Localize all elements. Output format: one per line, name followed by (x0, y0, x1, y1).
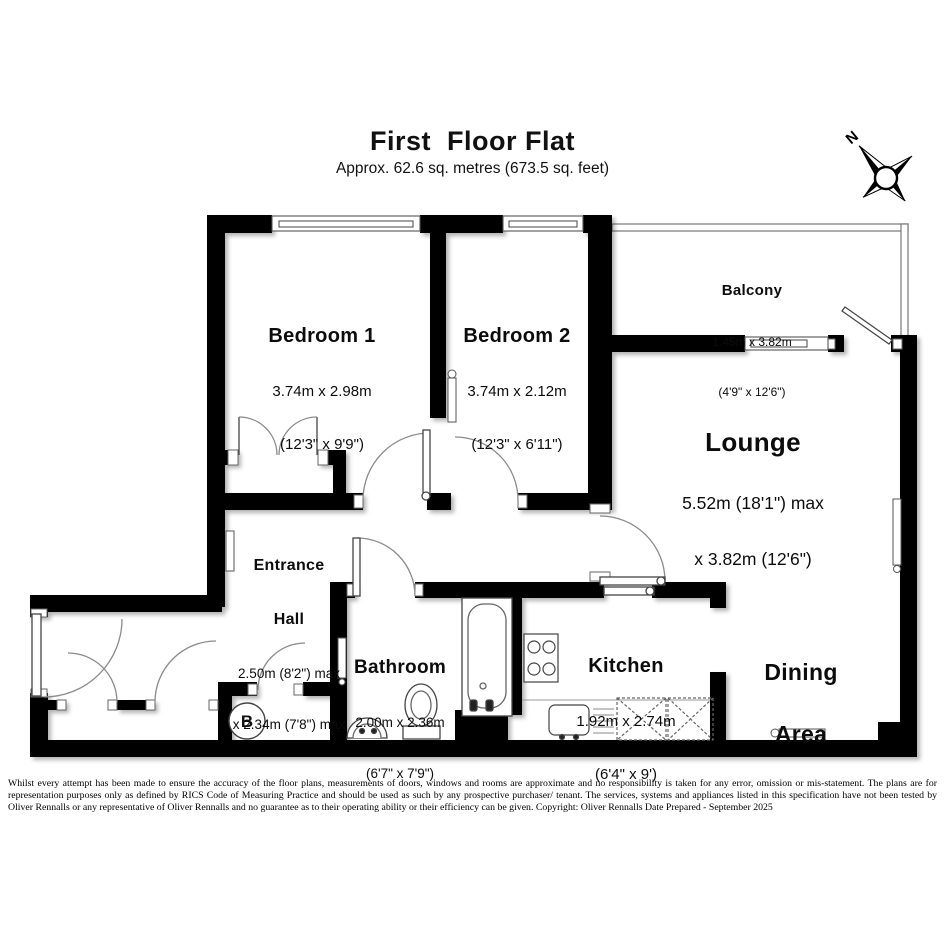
hob (524, 634, 558, 682)
page-title: First Floor Flat (0, 126, 945, 157)
kitchen-sliding-door (604, 587, 654, 595)
disclaimer-text: Whilst every attempt has been made to en… (8, 778, 937, 813)
room-label-dining-area: Dining Area (764, 623, 837, 765)
room-label-kitchen: Kitchen 1.92m x 2.74m (6'4" x 9') (576, 619, 675, 802)
room-label-bedroom1: Bedroom 1 3.74m x 2.98m (12'3" x 9'9") (268, 289, 375, 472)
room-label-lounge: Lounge 5.52m (18'1") max x 3.82m (12'6") (682, 392, 824, 587)
bathroom-door (353, 538, 415, 596)
page-title-block: First Floor Flat Approx. 62.6 sq. metres… (0, 126, 945, 178)
boiler-label: B (241, 712, 253, 732)
cupboard2-door (155, 641, 216, 702)
lounge-radiator (893, 499, 901, 573)
balcony-door (842, 307, 892, 344)
entrance-door (32, 614, 122, 697)
room-label-bedroom2: Bedroom 2 3.74m x 2.12m (12'3" x 6'11") (463, 289, 570, 472)
bedroom1-window (272, 216, 420, 231)
room-label-bathroom: Bathroom 2.00m x 2.36m (6'7" x 7'9") (354, 621, 446, 800)
page-subtitle: Approx. 62.6 sq. metres (673.5 sq. feet) (0, 160, 945, 178)
bathtub (462, 598, 512, 716)
bedroom2-window (503, 216, 583, 231)
bedroom2-radiator (448, 370, 456, 422)
